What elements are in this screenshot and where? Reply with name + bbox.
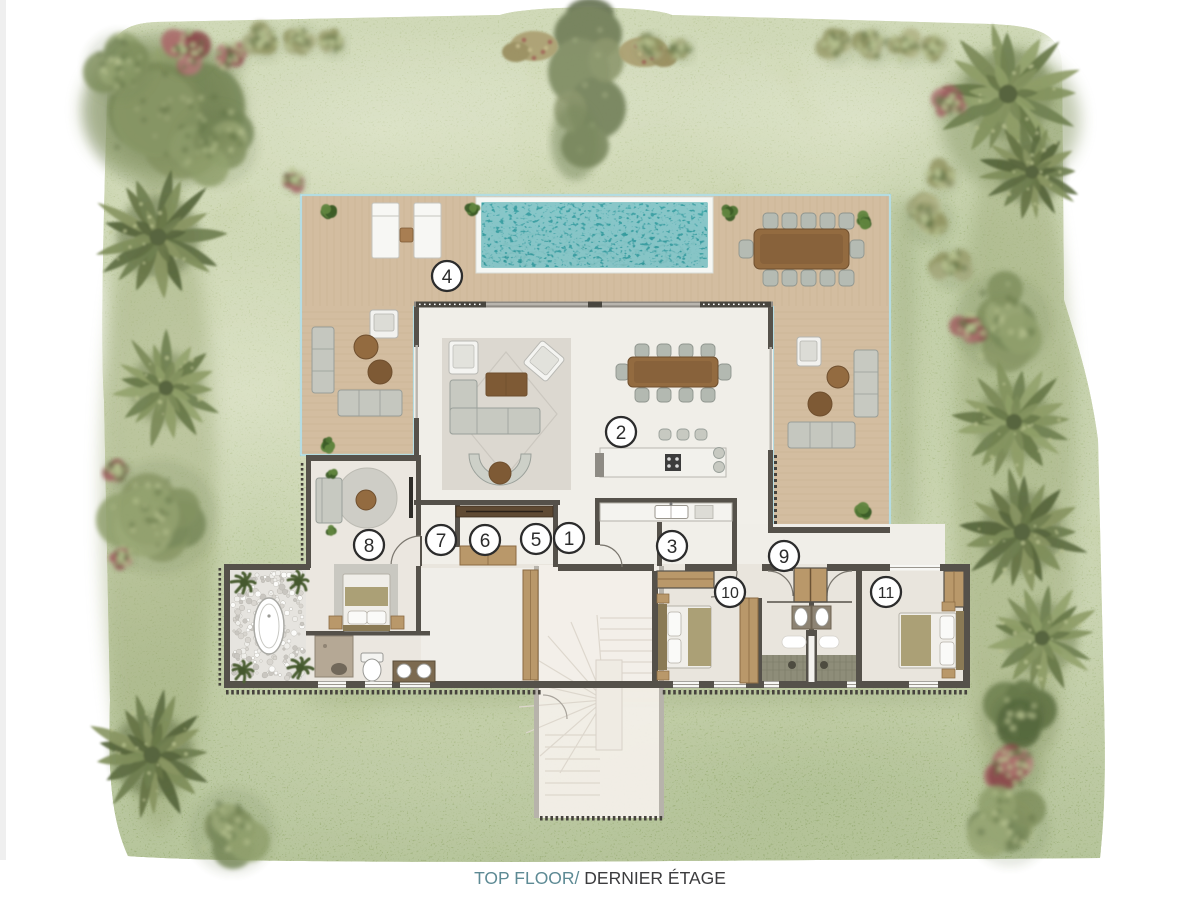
svg-text:4: 4 [442,267,453,288]
svg-text:2: 2 [616,423,627,444]
svg-text:6: 6 [480,531,491,552]
svg-text:8: 8 [364,536,375,557]
svg-text:10: 10 [721,585,739,602]
svg-text:9: 9 [779,547,790,568]
svg-text:7: 7 [436,531,447,552]
svg-text:1: 1 [564,529,575,550]
svg-text:5: 5 [531,530,542,551]
svg-text:11: 11 [878,585,895,602]
svg-text:3: 3 [667,537,678,558]
svg-text:TOP FLOOR/ DERNIER ÉTAGE: TOP FLOOR/ DERNIER ÉTAGE [474,868,726,888]
